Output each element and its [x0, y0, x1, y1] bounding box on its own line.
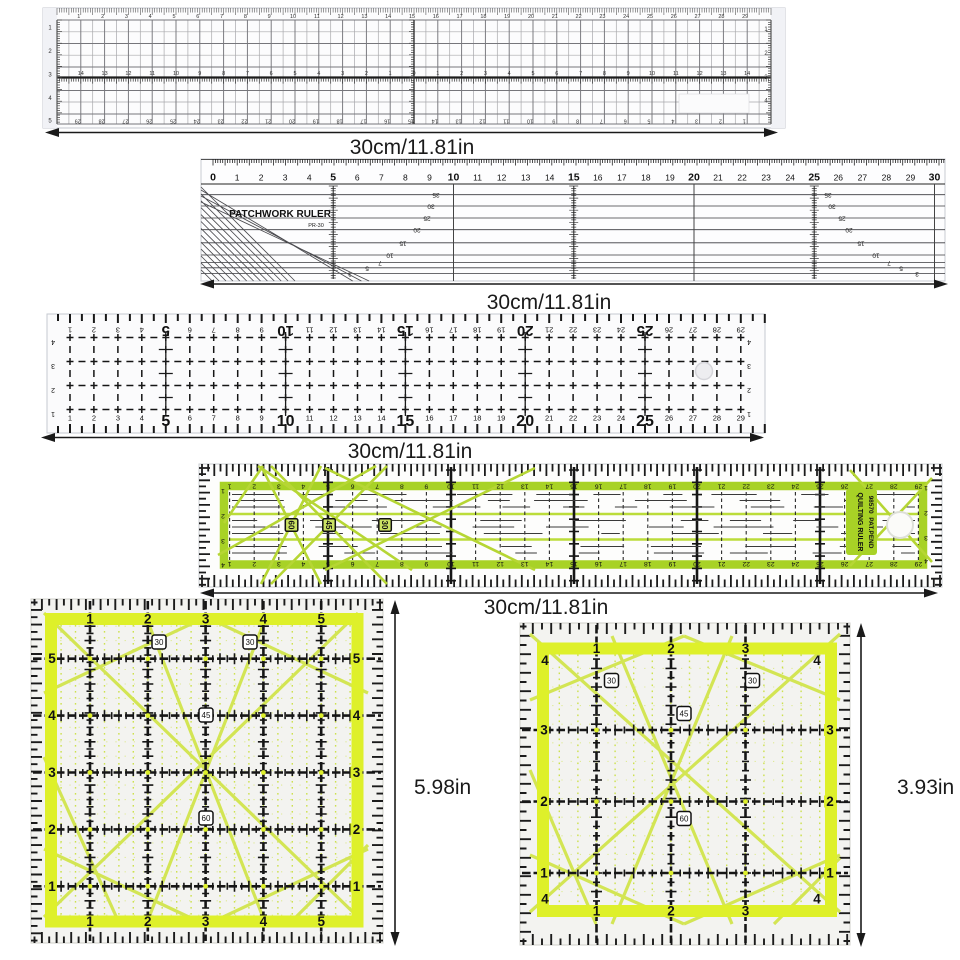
svg-text:17: 17 [457, 14, 463, 20]
svg-text:1: 1 [86, 914, 94, 929]
svg-text:4: 4 [301, 483, 305, 490]
svg-text:23: 23 [767, 483, 775, 490]
svg-text:1: 1 [540, 866, 548, 881]
svg-text:5: 5 [293, 71, 296, 77]
svg-text:19: 19 [497, 414, 505, 423]
svg-text:19: 19 [668, 560, 676, 567]
svg-text:18: 18 [337, 118, 343, 124]
svg-text:29: 29 [742, 14, 748, 20]
svg-text:24: 24 [617, 414, 625, 423]
svg-text:14: 14 [545, 560, 553, 567]
svg-text:28: 28 [890, 560, 898, 567]
svg-text:22: 22 [576, 14, 582, 20]
svg-text:8: 8 [400, 483, 404, 490]
svg-text:19: 19 [668, 483, 676, 490]
svg-text:4: 4 [260, 914, 268, 929]
svg-text:4: 4 [541, 892, 549, 907]
svg-text:10: 10 [527, 118, 533, 124]
svg-text:6: 6 [355, 173, 360, 183]
svg-text:1: 1 [389, 71, 392, 77]
svg-text:21: 21 [713, 173, 723, 183]
svg-text:6: 6 [188, 414, 192, 423]
svg-text:29: 29 [737, 414, 745, 423]
svg-text:4: 4 [221, 561, 225, 568]
svg-text:4: 4 [48, 708, 56, 723]
svg-text:26: 26 [834, 173, 844, 183]
svg-text:4: 4 [51, 338, 55, 345]
svg-text:14: 14 [432, 118, 438, 124]
svg-text:4: 4 [813, 892, 821, 907]
svg-text:1: 1 [593, 904, 601, 919]
svg-text:22: 22 [742, 560, 750, 567]
svg-text:12: 12 [479, 118, 485, 124]
svg-text:21: 21 [265, 118, 271, 124]
svg-text:1: 1 [235, 173, 240, 183]
svg-text:14: 14 [78, 71, 84, 77]
svg-text:3: 3 [283, 173, 288, 183]
svg-text:20: 20 [413, 226, 421, 233]
svg-text:7: 7 [600, 118, 603, 124]
svg-text:4: 4 [149, 14, 152, 20]
svg-text:10: 10 [649, 71, 655, 77]
svg-text:2: 2 [101, 14, 104, 20]
svg-text:4: 4 [301, 560, 305, 567]
svg-text:6: 6 [270, 71, 273, 77]
svg-text:17: 17 [619, 560, 627, 567]
svg-text:2: 2 [365, 71, 368, 77]
svg-text:7: 7 [378, 259, 382, 266]
svg-text:17: 17 [449, 414, 457, 423]
svg-text:26: 26 [841, 483, 849, 490]
svg-text:11: 11 [472, 483, 479, 490]
svg-text:7: 7 [375, 483, 379, 490]
svg-text:1: 1 [51, 410, 55, 417]
svg-text:25: 25 [647, 14, 653, 20]
svg-text:3: 3 [202, 914, 210, 929]
svg-text:29: 29 [75, 118, 81, 124]
svg-text:23: 23 [761, 173, 771, 183]
svg-text:8: 8 [236, 326, 240, 335]
svg-text:11: 11 [306, 414, 314, 423]
svg-text:5: 5 [353, 651, 361, 666]
svg-text:PATCHWORK RULER: PATCHWORK RULER [229, 209, 332, 220]
svg-text:13: 13 [102, 71, 108, 77]
svg-text:23: 23 [593, 414, 601, 423]
svg-text:11: 11 [149, 71, 155, 77]
svg-text:25: 25 [170, 118, 176, 124]
svg-text:4: 4 [353, 708, 361, 723]
svg-text:19: 19 [665, 173, 675, 183]
svg-text:19: 19 [497, 326, 505, 335]
svg-text:11: 11 [306, 326, 314, 335]
svg-text:8: 8 [244, 14, 247, 20]
svg-text:3: 3 [742, 904, 750, 919]
svg-text:10: 10 [872, 252, 880, 259]
svg-text:22: 22 [737, 173, 747, 183]
svg-text:19: 19 [504, 14, 510, 20]
svg-text:10: 10 [447, 560, 455, 567]
svg-text:1: 1 [826, 866, 834, 881]
svg-text:21: 21 [718, 560, 726, 567]
svg-text:8: 8 [576, 118, 579, 124]
svg-text:13: 13 [353, 326, 361, 335]
svg-text:6: 6 [350, 560, 354, 567]
svg-text:5: 5 [899, 264, 903, 271]
svg-text:2: 2 [747, 386, 751, 393]
svg-text:2: 2 [144, 914, 152, 929]
svg-text:30cm/11.81in: 30cm/11.81in [484, 596, 609, 619]
svg-text:17: 17 [617, 173, 627, 183]
svg-text:12: 12 [329, 414, 337, 423]
svg-text:23: 23 [599, 14, 605, 20]
svg-text:QUILTING RULER: QUILTING RULER [856, 493, 863, 552]
svg-text:10: 10 [290, 14, 296, 20]
svg-text:7: 7 [212, 414, 216, 423]
svg-text:16: 16 [425, 414, 433, 423]
svg-text:0: 0 [210, 172, 216, 184]
svg-text:1: 1 [48, 879, 56, 894]
svg-text:7: 7 [212, 326, 216, 335]
svg-text:30: 30 [828, 203, 836, 210]
svg-text:18: 18 [473, 414, 481, 423]
svg-text:4: 4 [813, 653, 821, 668]
svg-text:9: 9 [424, 483, 428, 490]
svg-text:5: 5 [365, 264, 369, 271]
svg-text:13: 13 [361, 14, 367, 20]
svg-text:6: 6 [188, 326, 192, 335]
svg-text:16: 16 [595, 560, 603, 567]
svg-text:1: 1 [68, 326, 72, 335]
svg-text:35: 35 [824, 191, 832, 198]
svg-text:21: 21 [545, 326, 553, 335]
svg-text:4: 4 [541, 653, 549, 668]
svg-text:2: 2 [92, 414, 96, 423]
svg-text:3: 3 [277, 483, 281, 490]
svg-text:3: 3 [116, 326, 120, 335]
svg-text:4: 4 [747, 338, 751, 345]
svg-text:2: 2 [540, 794, 548, 809]
svg-text:6: 6 [624, 118, 627, 124]
svg-text:3: 3 [48, 765, 56, 780]
svg-text:1: 1 [86, 612, 94, 627]
svg-text:16: 16 [433, 14, 439, 20]
svg-text:12: 12 [125, 71, 131, 77]
svg-text:30: 30 [246, 638, 255, 647]
svg-text:11: 11 [673, 71, 679, 77]
svg-text:3: 3 [202, 612, 210, 627]
svg-text:7: 7 [579, 71, 582, 77]
svg-text:27: 27 [865, 483, 873, 490]
svg-text:18: 18 [644, 483, 652, 490]
svg-text:10: 10 [173, 71, 179, 77]
svg-text:17: 17 [360, 118, 366, 124]
svg-text:22: 22 [569, 326, 577, 335]
svg-text:3: 3 [51, 362, 55, 369]
svg-text:1: 1 [77, 14, 80, 20]
svg-text:98570 PAT.PEND: 98570 PAT.PEND [867, 496, 874, 549]
svg-text:3: 3 [915, 270, 919, 277]
svg-text:13: 13 [521, 560, 529, 567]
svg-text:18: 18 [480, 14, 486, 20]
svg-text:13: 13 [353, 414, 361, 423]
svg-text:30: 30 [748, 677, 757, 686]
svg-text:8: 8 [236, 414, 240, 423]
svg-text:8: 8 [222, 71, 225, 77]
svg-text:3: 3 [341, 71, 344, 77]
svg-text:29: 29 [914, 483, 922, 490]
svg-text:3: 3 [826, 723, 834, 738]
svg-text:13: 13 [456, 118, 462, 124]
svg-text:26: 26 [665, 326, 673, 335]
svg-text:30: 30 [380, 521, 389, 530]
svg-text:45: 45 [202, 711, 211, 720]
svg-text:25: 25 [816, 560, 824, 567]
svg-text:9: 9 [260, 414, 264, 423]
svg-text:5: 5 [531, 71, 534, 77]
svg-text:14: 14 [545, 483, 553, 490]
svg-text:14: 14 [545, 173, 555, 183]
svg-text:12: 12 [497, 173, 507, 183]
svg-text:60: 60 [286, 521, 295, 530]
svg-text:2: 2 [924, 509, 928, 516]
svg-text:24: 24 [791, 483, 799, 490]
svg-text:22: 22 [241, 118, 247, 124]
svg-text:15: 15 [570, 560, 578, 567]
svg-text:13: 13 [521, 173, 531, 183]
svg-text:18: 18 [644, 560, 652, 567]
svg-text:4: 4 [140, 414, 144, 423]
svg-text:3: 3 [277, 560, 281, 567]
svg-text:14: 14 [377, 414, 385, 423]
svg-text:60: 60 [202, 814, 211, 823]
svg-text:24: 24 [791, 560, 799, 567]
svg-text:9: 9 [427, 173, 432, 183]
svg-text:30: 30 [607, 677, 616, 686]
svg-text:11: 11 [503, 118, 509, 124]
svg-text:3: 3 [353, 765, 361, 780]
svg-text:2: 2 [51, 386, 55, 393]
svg-text:9: 9 [552, 118, 555, 124]
svg-text:9: 9 [627, 71, 630, 77]
svg-text:15: 15 [399, 239, 407, 246]
svg-text:30cm/11.81in: 30cm/11.81in [348, 440, 473, 463]
svg-text:4: 4 [924, 557, 928, 564]
svg-text:30cm/11.81in: 30cm/11.81in [487, 291, 612, 314]
svg-text:4: 4 [671, 118, 674, 124]
svg-text:5: 5 [317, 612, 325, 627]
svg-text:1: 1 [743, 118, 746, 124]
svg-text:5: 5 [326, 560, 330, 567]
svg-text:7: 7 [887, 259, 891, 266]
svg-text:18: 18 [473, 326, 481, 335]
svg-text:27: 27 [695, 14, 701, 20]
svg-text:3: 3 [924, 534, 928, 541]
svg-text:1: 1 [747, 410, 751, 417]
svg-text:4: 4 [508, 71, 511, 77]
svg-text:12: 12 [697, 71, 703, 77]
svg-text:9: 9 [198, 71, 201, 77]
svg-text:25: 25 [816, 483, 824, 490]
svg-text:2: 2 [667, 904, 675, 919]
svg-text:2: 2 [460, 71, 463, 77]
svg-text:3: 3 [742, 641, 750, 656]
svg-text:29: 29 [906, 173, 916, 183]
svg-text:26: 26 [665, 414, 673, 423]
svg-text:8: 8 [400, 560, 404, 567]
svg-text:29: 29 [737, 326, 745, 335]
svg-text:13: 13 [521, 483, 529, 490]
svg-text:2: 2 [221, 512, 225, 519]
svg-text:2: 2 [667, 641, 675, 656]
svg-text:28: 28 [713, 414, 721, 423]
svg-text:30: 30 [929, 172, 941, 184]
svg-text:5: 5 [330, 172, 336, 184]
svg-text:3: 3 [747, 362, 751, 369]
svg-text:23: 23 [218, 118, 224, 124]
svg-text:15: 15 [408, 118, 414, 124]
svg-text:25: 25 [423, 215, 431, 222]
svg-text:16: 16 [425, 326, 433, 335]
svg-text:24: 24 [785, 173, 795, 183]
svg-text:29: 29 [914, 560, 922, 567]
svg-text:27: 27 [689, 326, 697, 335]
svg-text:14: 14 [377, 326, 385, 335]
svg-text:24: 24 [623, 14, 629, 20]
svg-text:5.98in: 5.98in [414, 776, 471, 799]
svg-text:21: 21 [545, 414, 553, 423]
svg-text:5: 5 [48, 651, 56, 666]
svg-text:1: 1 [436, 71, 439, 77]
svg-text:28: 28 [713, 326, 721, 335]
svg-text:2: 2 [826, 794, 834, 809]
svg-text:9: 9 [260, 326, 264, 335]
svg-text:17: 17 [619, 483, 627, 490]
svg-text:17: 17 [449, 326, 457, 335]
svg-text:26: 26 [841, 560, 849, 567]
svg-text:28: 28 [890, 483, 898, 490]
svg-text:22: 22 [569, 414, 577, 423]
svg-text:24: 24 [194, 118, 200, 124]
svg-text:30: 30 [155, 638, 164, 647]
svg-text:10: 10 [386, 252, 394, 259]
svg-text:45: 45 [680, 710, 689, 719]
svg-text:5: 5 [326, 483, 330, 490]
svg-text:2: 2 [719, 118, 722, 124]
svg-text:4: 4 [260, 612, 268, 627]
svg-text:15: 15 [409, 14, 415, 20]
svg-text:30: 30 [427, 203, 435, 210]
svg-text:2: 2 [252, 483, 256, 490]
svg-text:4: 4 [307, 173, 312, 183]
svg-text:16: 16 [593, 173, 603, 183]
svg-text:12: 12 [338, 14, 344, 20]
svg-text:24: 24 [617, 326, 625, 335]
svg-text:6: 6 [196, 14, 199, 20]
svg-text:7: 7 [220, 14, 223, 20]
svg-text:35: 35 [432, 191, 440, 198]
svg-text:10: 10 [447, 483, 455, 490]
svg-text:27: 27 [865, 560, 873, 567]
svg-text:1: 1 [227, 483, 231, 490]
svg-text:25: 25 [838, 215, 846, 222]
svg-text:1: 1 [68, 414, 72, 423]
svg-text:11: 11 [314, 14, 320, 20]
svg-text:4: 4 [317, 71, 320, 77]
svg-text:5: 5 [317, 914, 325, 929]
svg-text:3: 3 [116, 414, 120, 423]
svg-text:18: 18 [641, 173, 651, 183]
svg-text:27: 27 [122, 118, 128, 124]
svg-text:PR-30: PR-30 [308, 223, 324, 229]
svg-text:27: 27 [689, 414, 697, 423]
svg-text:11: 11 [473, 173, 482, 183]
svg-text:1: 1 [593, 641, 601, 656]
svg-text:7: 7 [379, 173, 384, 183]
svg-text:45: 45 [324, 521, 333, 530]
svg-text:19: 19 [313, 118, 319, 124]
svg-text:20: 20 [528, 14, 534, 20]
svg-text:27: 27 [858, 173, 868, 183]
svg-text:13: 13 [720, 71, 726, 77]
svg-text:1: 1 [924, 484, 928, 491]
svg-text:21: 21 [718, 483, 726, 490]
svg-text:2: 2 [353, 822, 361, 837]
svg-text:12: 12 [329, 326, 337, 335]
svg-text:1: 1 [227, 560, 231, 567]
svg-text:5: 5 [647, 118, 650, 124]
svg-text:23: 23 [767, 560, 775, 567]
svg-text:2: 2 [92, 326, 96, 335]
svg-text:7: 7 [375, 560, 379, 567]
svg-text:15: 15 [568, 172, 580, 184]
svg-text:15: 15 [857, 239, 865, 246]
svg-text:3.93in: 3.93in [897, 776, 954, 799]
svg-text:60: 60 [680, 815, 689, 824]
svg-text:14: 14 [744, 71, 750, 77]
svg-text:21: 21 [552, 14, 558, 20]
svg-text:9: 9 [268, 14, 271, 20]
svg-text:12: 12 [496, 560, 504, 567]
svg-text:20: 20 [693, 483, 701, 490]
svg-text:6: 6 [350, 483, 354, 490]
svg-text:2: 2 [252, 560, 256, 567]
svg-text:4: 4 [140, 326, 144, 335]
svg-text:30cm/11.81in: 30cm/11.81in [350, 136, 475, 159]
svg-text:3: 3 [221, 537, 225, 544]
svg-text:20: 20 [693, 560, 701, 567]
svg-text:14: 14 [385, 14, 391, 20]
svg-text:6: 6 [555, 71, 558, 77]
svg-text:25: 25 [808, 172, 820, 184]
svg-text:15: 15 [570, 483, 578, 490]
svg-text:23: 23 [593, 326, 601, 335]
svg-text:26: 26 [671, 14, 677, 20]
svg-text:8: 8 [403, 173, 408, 183]
svg-text:16: 16 [595, 483, 603, 490]
svg-text:20: 20 [845, 226, 853, 233]
svg-text:26: 26 [146, 118, 152, 124]
svg-text:1: 1 [353, 879, 361, 894]
svg-text:28: 28 [99, 118, 105, 124]
svg-text:10: 10 [448, 172, 460, 184]
svg-text:28: 28 [882, 173, 892, 183]
svg-text:9: 9 [424, 560, 428, 567]
svg-text:20: 20 [289, 118, 295, 124]
svg-text:16: 16 [384, 118, 390, 124]
svg-text:3: 3 [125, 14, 128, 20]
svg-text:8: 8 [603, 71, 606, 77]
svg-text:20: 20 [688, 172, 700, 184]
